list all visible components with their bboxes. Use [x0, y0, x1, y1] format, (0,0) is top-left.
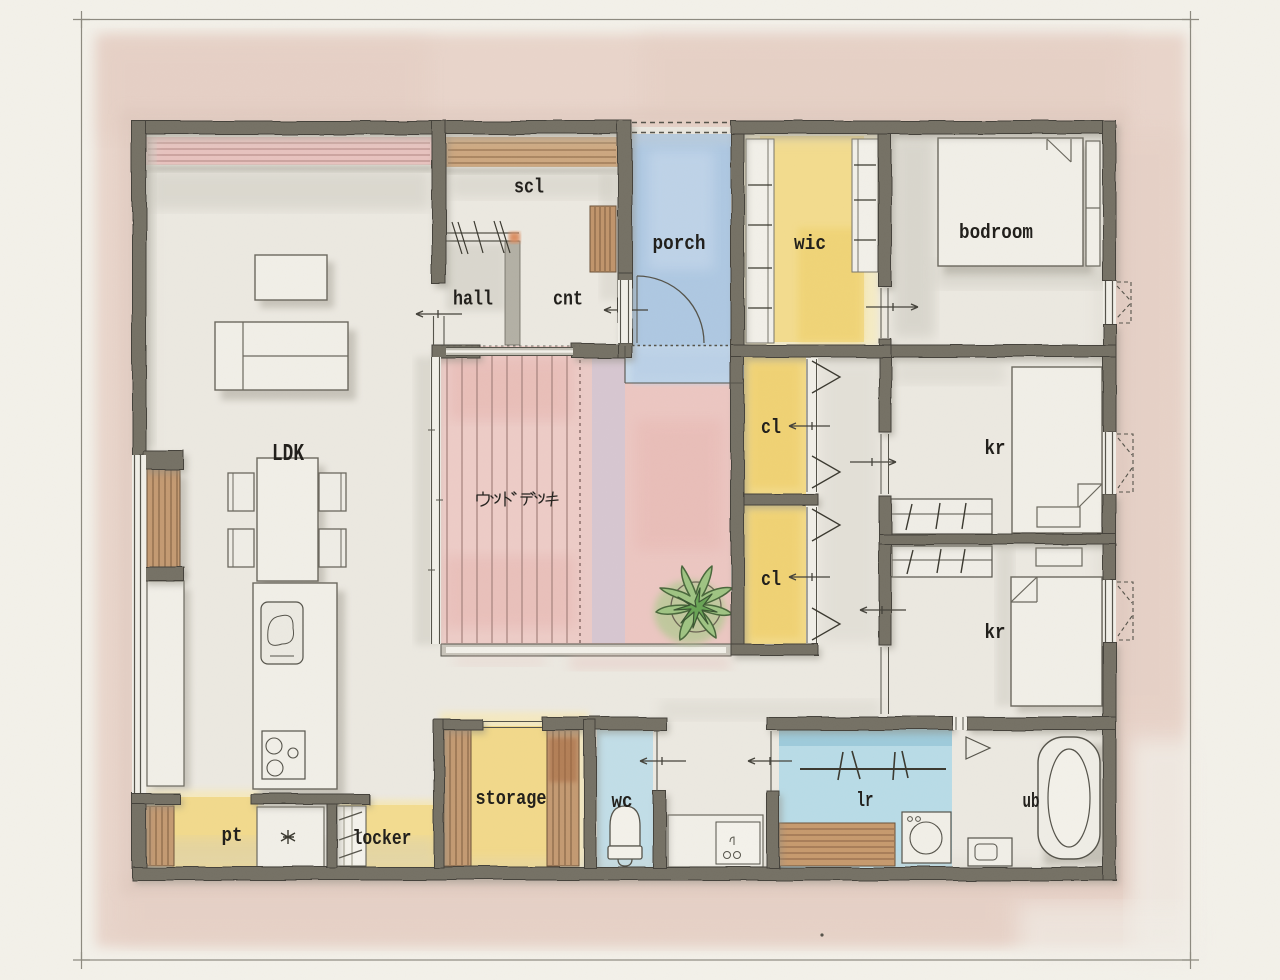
svg-text:kr: kr: [985, 622, 1006, 645]
svg-text:locker: locker: [353, 828, 412, 851]
svg-text:lr: lr: [857, 790, 874, 813]
svg-text:kr: kr: [985, 438, 1006, 461]
svg-text:wic: wic: [794, 233, 826, 256]
svg-text:ub: ub: [1023, 791, 1040, 814]
svg-text:scl: scl: [514, 177, 544, 200]
svg-text:LDK: LDK: [272, 441, 304, 468]
svg-text:bodroom: bodroom: [959, 222, 1033, 245]
svg-text:storage: storage: [476, 788, 547, 811]
svg-text:cnt: cnt: [553, 289, 583, 312]
svg-text:porch: porch: [653, 233, 706, 256]
svg-text:hall: hall: [453, 289, 493, 312]
svg-text:pt: pt: [222, 825, 243, 848]
svg-text:cl: cl: [761, 417, 781, 440]
svg-text:cl: cl: [761, 569, 781, 592]
svg-text:wc: wc: [612, 791, 633, 814]
